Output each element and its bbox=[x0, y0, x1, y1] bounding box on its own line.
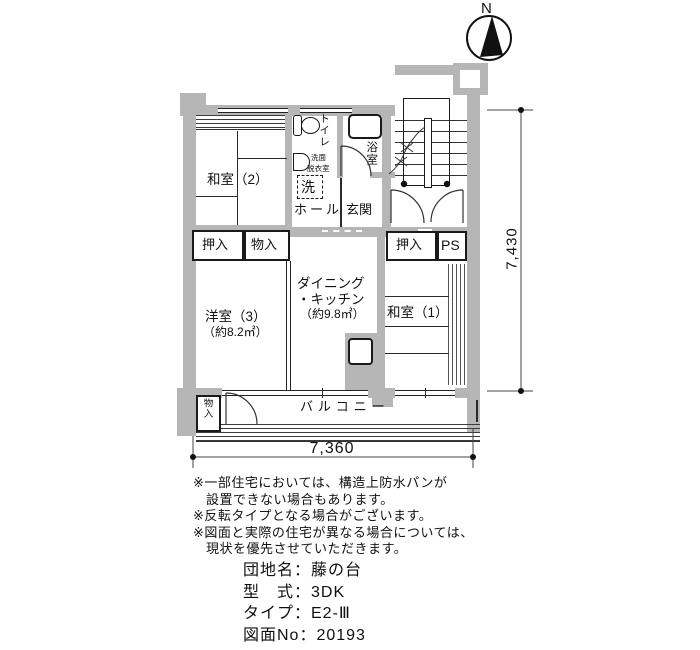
notes-block: ※一部住宅においては、構造上防水パンが 設置できない場合もあります。 ※反転タイ… bbox=[193, 475, 474, 558]
room-area-yoshitsu3: （約8.2㎡） bbox=[203, 326, 268, 340]
info-block: 団地名：藤の台 型 式：3DK タイプ：E2-Ⅲ 図面No：20193 bbox=[243, 560, 366, 646]
label-ps: PS bbox=[441, 237, 460, 253]
room-label-bath: 浴室 bbox=[364, 141, 377, 166]
room-label-washitsu1: 和室（1） bbox=[387, 305, 449, 321]
room-label-senmen-1: 洗面 bbox=[311, 153, 326, 162]
stair-direction-line bbox=[389, 127, 425, 174]
note-line: ※反転タイプとなる場合がございます。 bbox=[193, 508, 474, 525]
dimension-label-vertical: 7,430 bbox=[504, 221, 521, 277]
dimension-dot bbox=[190, 454, 196, 460]
closet-label-monoire-left: 物入 bbox=[251, 238, 277, 253]
balcony-door-arc bbox=[226, 393, 257, 424]
info-type: 型 式：3DK bbox=[243, 582, 366, 604]
info-danchi-name: 団地名：藤の台 bbox=[243, 560, 366, 582]
label-monoire-balcony: 物入 bbox=[202, 398, 212, 419]
room-label-genkan: 玄関 bbox=[346, 203, 372, 218]
entrance-door-arc bbox=[431, 190, 463, 223]
room-label-washitsu2: 和室（2） bbox=[207, 172, 269, 188]
room-label-yoshitsu3: 洋室（3） bbox=[205, 309, 267, 325]
room-label-dk-1: ダイニング bbox=[297, 276, 365, 292]
closet-label-oshiire-left: 押入 bbox=[202, 238, 228, 253]
stair-post-dot bbox=[401, 181, 407, 187]
compass-needle-icon bbox=[480, 16, 503, 57]
room-label-hall: ホール bbox=[294, 203, 342, 218]
note-line: ※図面と実際の住宅が異なる場合については、 bbox=[193, 525, 474, 542]
note-line: 設置できない場合もあります。 bbox=[193, 492, 474, 509]
dimension-dot bbox=[470, 454, 476, 460]
note-line: ※一部住宅においては、構造上防水パンが bbox=[193, 475, 474, 492]
label-laundry: 洗 bbox=[301, 179, 315, 195]
room-area-dk: （約9.8㎡） bbox=[300, 308, 365, 322]
dimension-label-horizontal: 7,360 bbox=[292, 440, 372, 458]
room-label-dk-2: ・キッチン bbox=[297, 292, 365, 308]
info-plan-type: タイプ：E2-Ⅲ bbox=[243, 603, 366, 625]
room-label-senmen-2: 脱衣室 bbox=[307, 164, 330, 173]
note-line: 現状を優先させていただきます。 bbox=[193, 541, 474, 558]
dimension-dot bbox=[518, 107, 524, 113]
dimension-dot bbox=[518, 388, 524, 394]
room-label-balcony: バルコニー bbox=[300, 400, 390, 415]
closet-label-oshiire-right: 押入 bbox=[396, 238, 422, 253]
entrance-door-arc bbox=[391, 190, 424, 223]
floor-plan-page: N bbox=[0, 0, 700, 650]
room-label-toilet: トイレ bbox=[318, 113, 330, 148]
info-drawing-no: 図面No：20193 bbox=[243, 625, 366, 647]
stair-post-dot bbox=[444, 181, 450, 187]
